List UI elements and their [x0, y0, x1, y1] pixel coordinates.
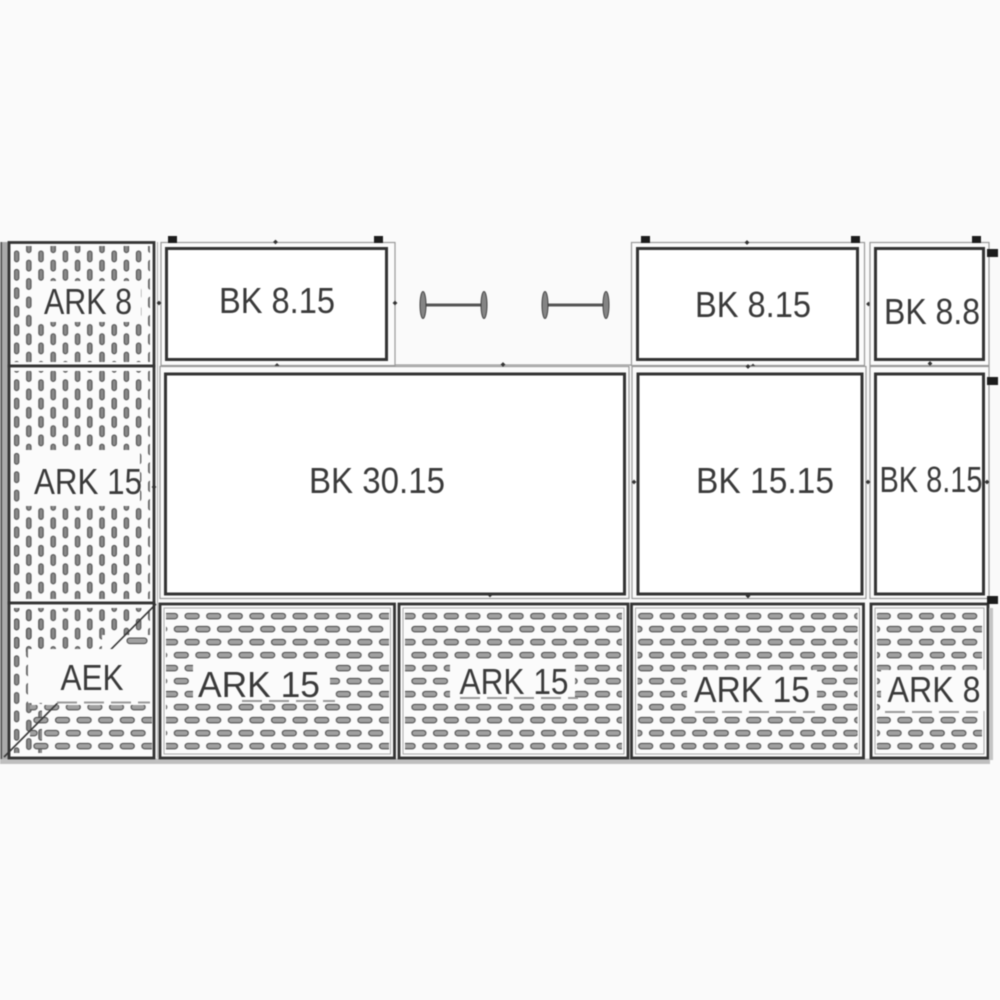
svg-text:BK 15.15: BK 15.15 — [696, 460, 834, 501]
svg-text:BK 30.15: BK 30.15 — [309, 460, 445, 501]
svg-text:ARK 8: ARK 8 — [44, 281, 132, 322]
svg-text:ARK 15: ARK 15 — [34, 461, 142, 502]
svg-text:AEK: AEK — [61, 657, 124, 698]
svg-text:BK 8.15: BK 8.15 — [695, 284, 811, 325]
svg-text:BK 8.8: BK 8.8 — [884, 291, 980, 332]
svg-text:ARK 15: ARK 15 — [460, 661, 569, 702]
svg-text:ARK 15: ARK 15 — [694, 669, 810, 710]
svg-text:ARK 15: ARK 15 — [198, 664, 320, 705]
svg-text:BK 8.15: BK 8.15 — [880, 459, 983, 500]
svg-text:BK 8.15: BK 8.15 — [219, 280, 335, 321]
svg-text:ARK 8: ARK 8 — [888, 669, 981, 710]
